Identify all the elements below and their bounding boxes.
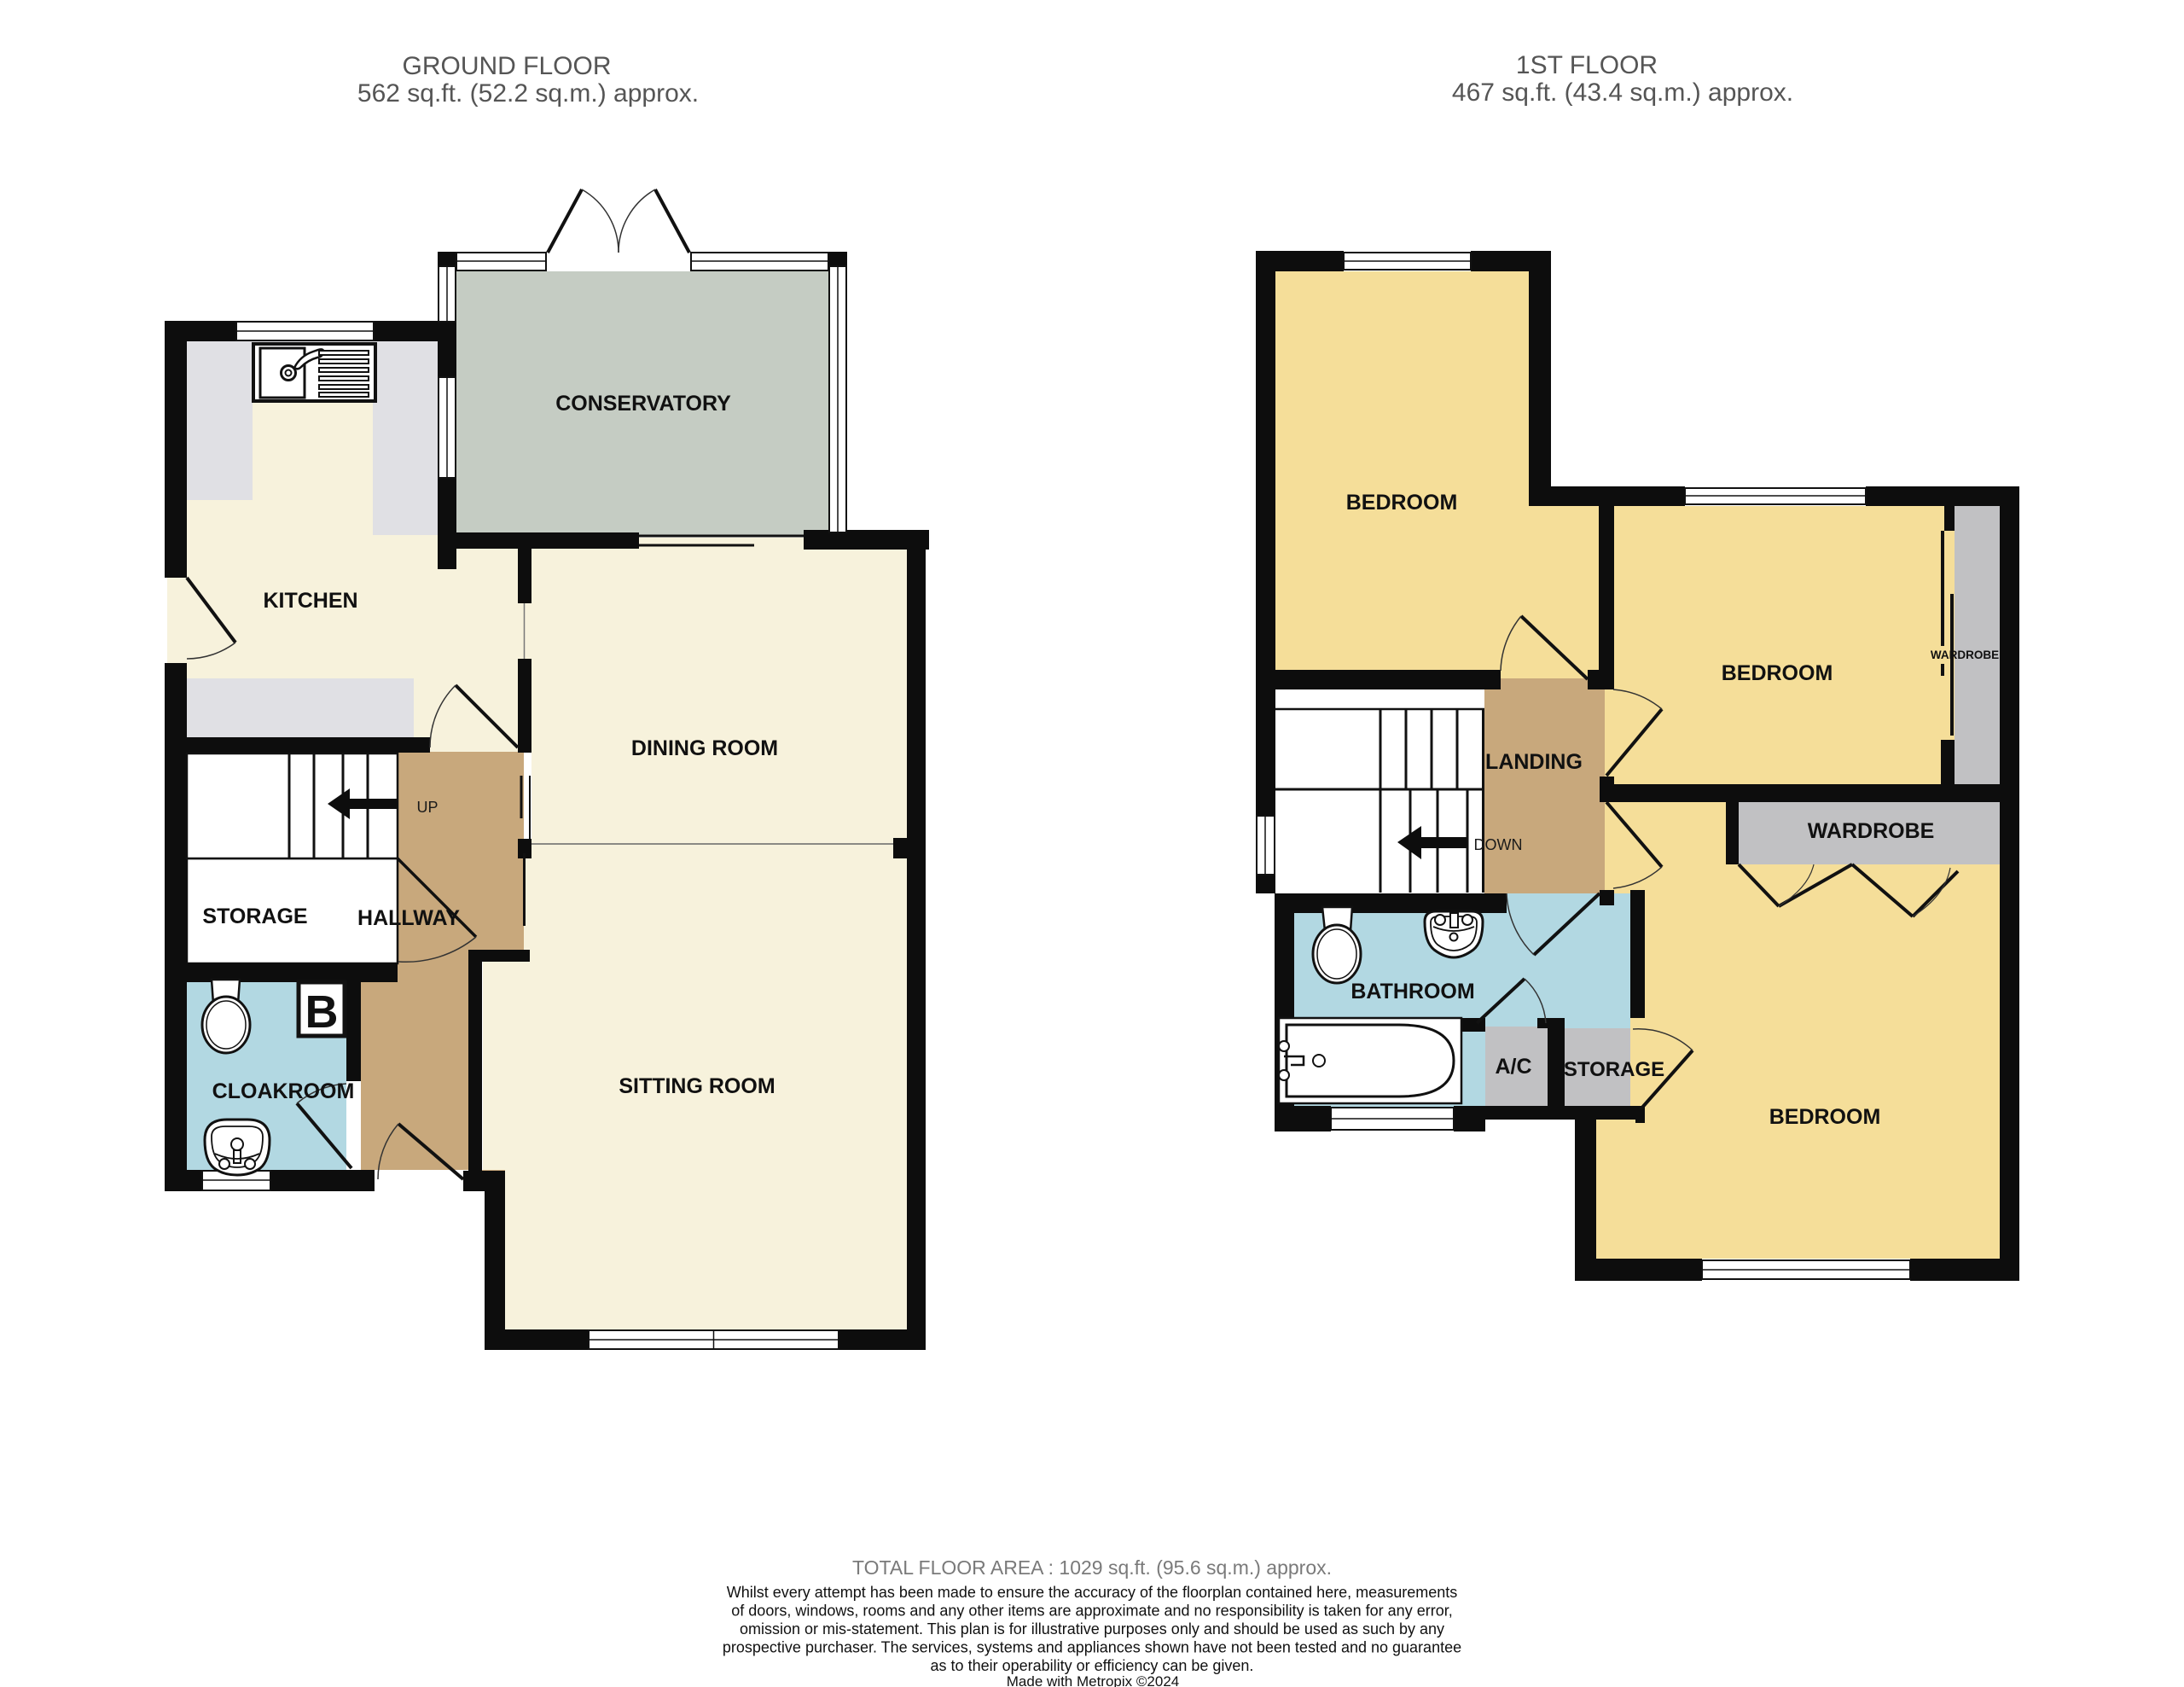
svg-text:LANDING: LANDING xyxy=(1485,750,1583,774)
svg-text:WARDROBE: WARDROBE xyxy=(1931,649,1999,661)
svg-text:BATHROOM: BATHROOM xyxy=(1350,980,1474,1003)
svg-text:B: B xyxy=(305,986,339,1038)
svg-text:1ST FLOOR: 1ST FLOOR xyxy=(1516,51,1658,79)
svg-text:UP: UP xyxy=(416,799,438,816)
svg-text:BEDROOM: BEDROOM xyxy=(1722,661,1833,685)
svg-text:TOTAL FLOOR AREA : 1029 sq.ft.: TOTAL FLOOR AREA : 1029 sq.ft. (95.6 sq.… xyxy=(852,1556,1332,1579)
svg-text:KITCHEN: KITCHEN xyxy=(263,589,357,613)
svg-text:A/C: A/C xyxy=(1495,1055,1531,1079)
svg-text:omission or mis-statement. Thi: omission or mis-statement. This plan is … xyxy=(740,1620,1444,1638)
svg-text:CLOAKROOM: CLOAKROOM xyxy=(212,1079,355,1103)
svg-text:HALLWAY: HALLWAY xyxy=(357,906,460,930)
svg-text:SITTING ROOM: SITTING ROOM xyxy=(619,1074,775,1098)
svg-text:DOWN: DOWN xyxy=(1474,836,1523,853)
svg-text:STORAGE: STORAGE xyxy=(202,905,307,928)
svg-text:562 sq.ft. (52.2 sq.m.) approx: 562 sq.ft. (52.2 sq.m.) approx. xyxy=(357,79,699,108)
svg-text:WARDROBE: WARDROBE xyxy=(1808,819,1935,843)
svg-text:as to their operability or eff: as to their operability or efficiency ca… xyxy=(931,1657,1254,1674)
svg-text:Whilst every attempt has been: Whilst every attempt has been made to en… xyxy=(727,1584,1457,1601)
svg-text:GROUND FLOOR: GROUND FLOOR xyxy=(402,52,611,80)
svg-text:467 sq.ft. (43.4 sq.m.) approx: 467 sq.ft. (43.4 sq.m.) approx. xyxy=(1452,79,1793,107)
svg-text:BEDROOM: BEDROOM xyxy=(1769,1105,1881,1129)
svg-text:DINING ROOM: DINING ROOM xyxy=(631,736,778,760)
svg-text:CONSERVATORY: CONSERVATORY xyxy=(555,392,731,416)
svg-text:of doors, windows, rooms and a: of doors, windows, rooms and any other i… xyxy=(731,1603,1452,1620)
svg-text:prospective purchaser. The ser: prospective purchaser. The services, sys… xyxy=(723,1639,1461,1656)
svg-text:Made with Metropix ©2024: Made with Metropix ©2024 xyxy=(1007,1673,1179,1687)
svg-text:BEDROOM: BEDROOM xyxy=(1346,491,1458,515)
svg-text:STORAGE: STORAGE xyxy=(1564,1058,1664,1081)
